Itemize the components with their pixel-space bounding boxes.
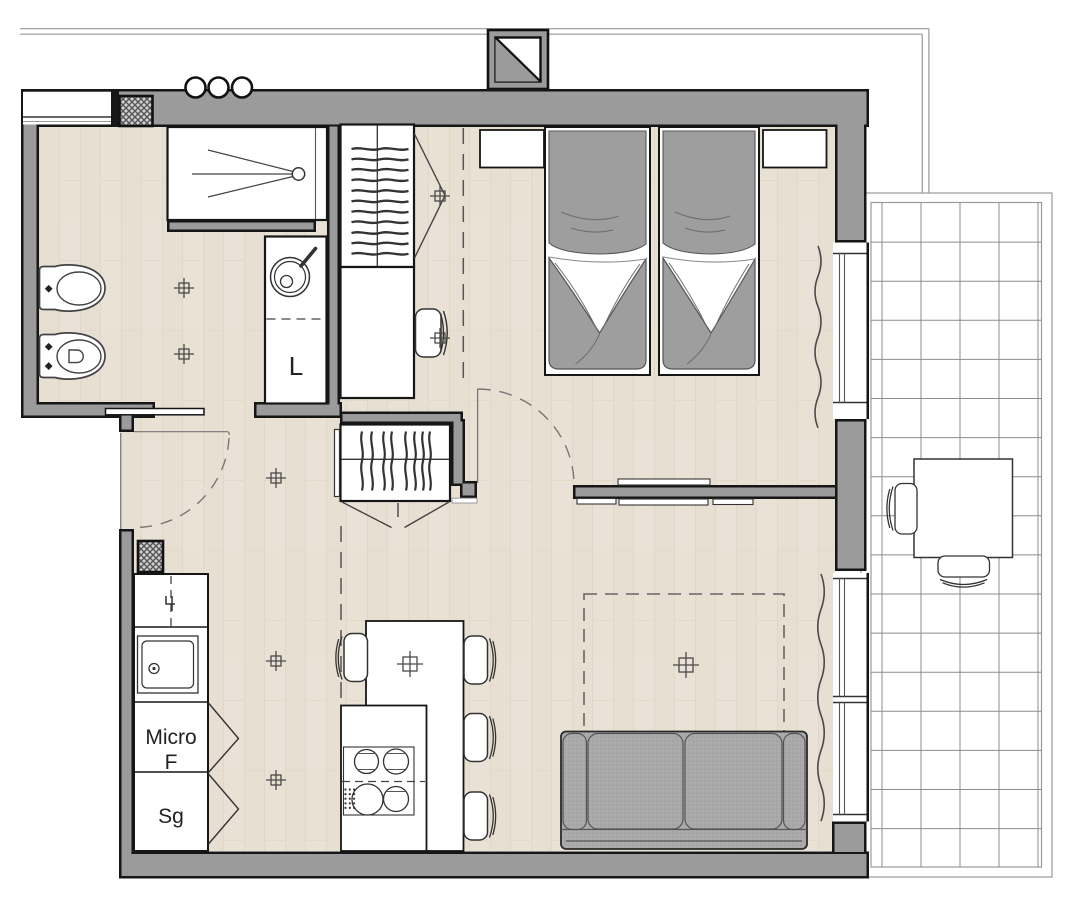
svg-text:Sg: Sg xyxy=(158,805,184,828)
svg-text:Micro: Micro xyxy=(145,726,196,749)
svg-text:L: L xyxy=(289,351,303,381)
svg-text:F: F xyxy=(165,751,178,774)
